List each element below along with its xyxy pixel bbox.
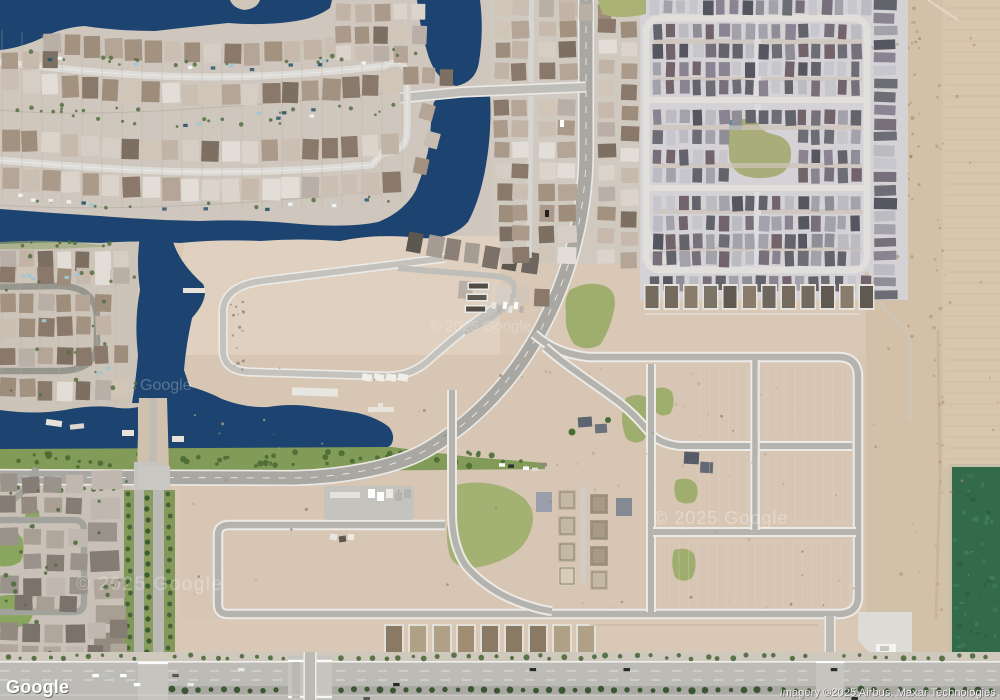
svg-text:Imagery ©2025 Airbus, Maxar Te: Imagery ©2025 Airbus, Maxar Technologies bbox=[780, 687, 997, 699]
svg-text:© 2025 Google: © 2025 Google bbox=[654, 508, 788, 528]
svg-text:© 2025 Google: © 2025 Google bbox=[76, 574, 224, 595]
svg-text:Google: Google bbox=[140, 377, 192, 394]
svg-text:© 2025 Google: © 2025 Google bbox=[430, 318, 531, 335]
svg-text:Google: Google bbox=[6, 677, 69, 697]
